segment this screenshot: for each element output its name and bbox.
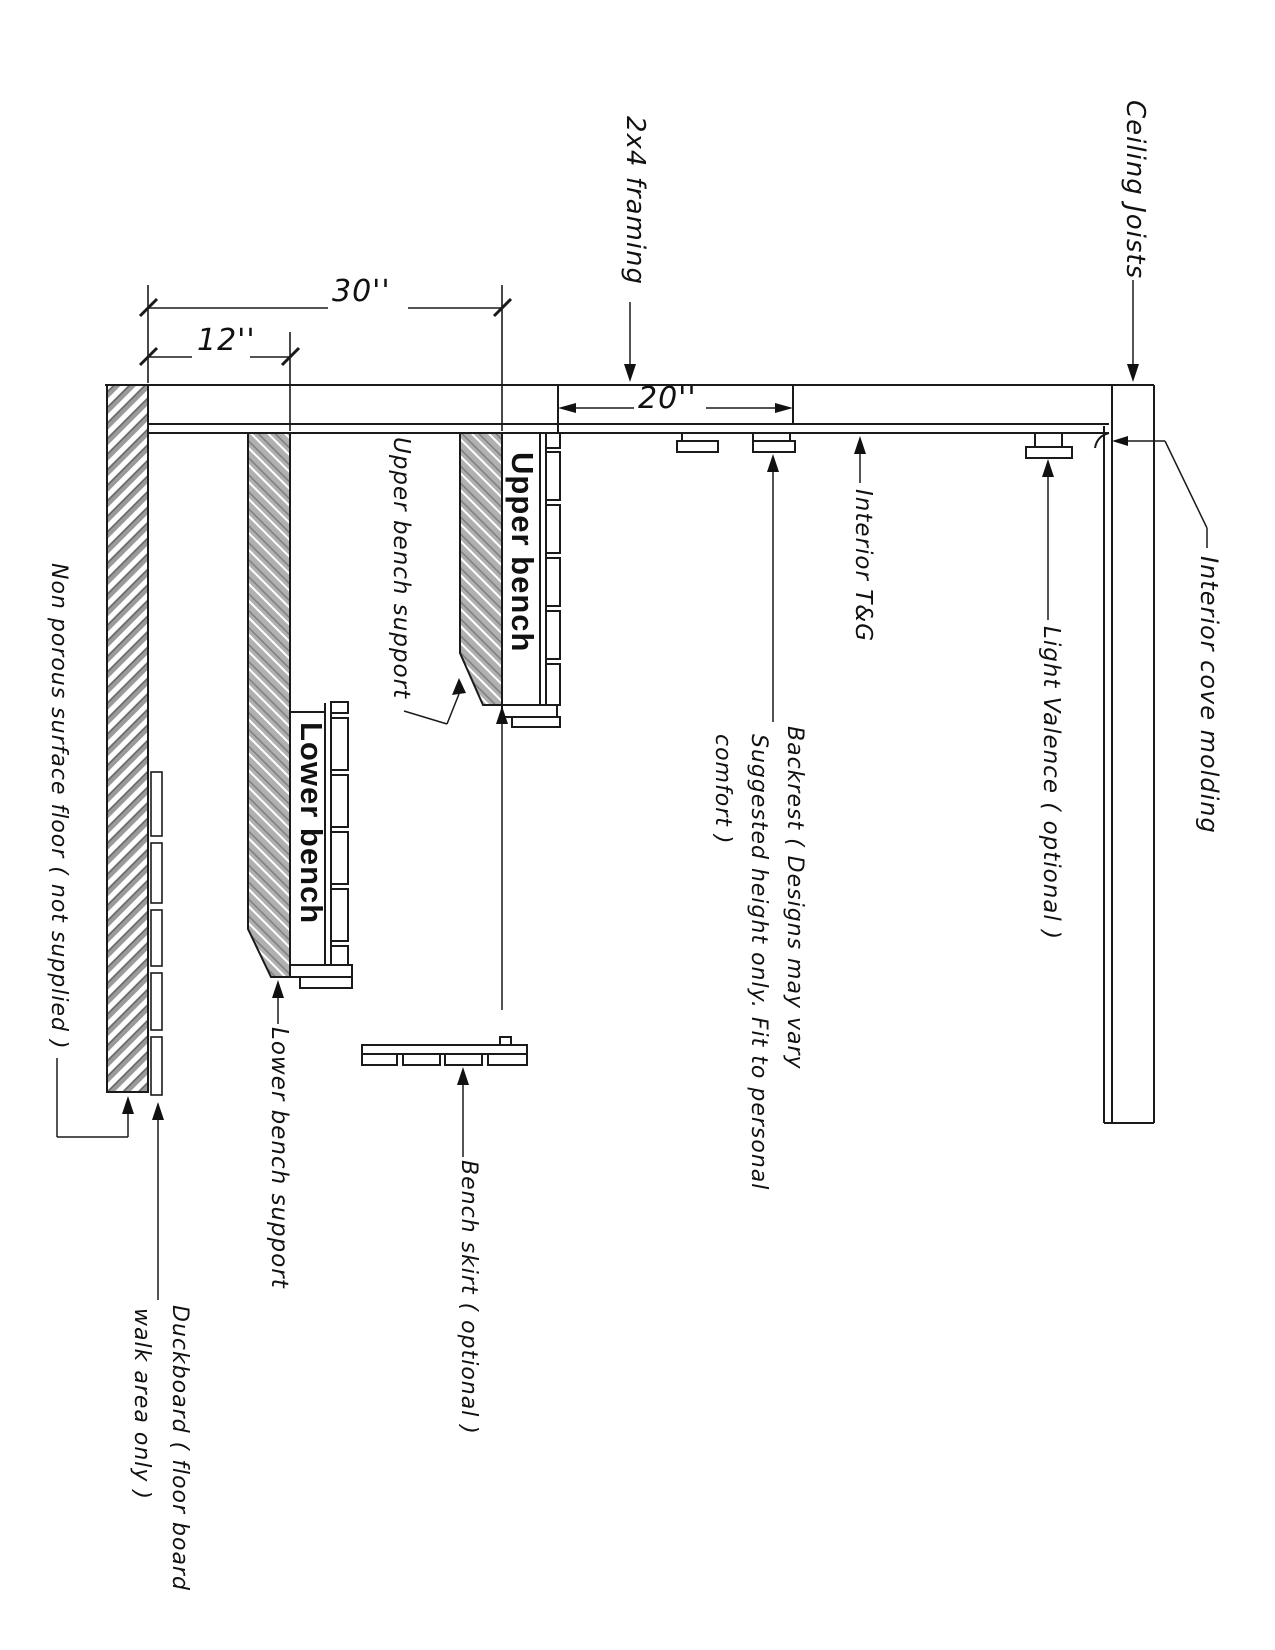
label-interior-tg: Interior T&G (850, 489, 875, 642)
upper-bench-post (460, 433, 502, 705)
label-lower-bench: Lower bench (294, 722, 328, 924)
dimension-30 (140, 285, 511, 431)
label-backrest-line2: Suggested height only. Fit to personal (746, 734, 770, 1190)
label-2x4-framing: 2x4 framing (620, 116, 649, 285)
dim-text-30: 30'' (332, 277, 391, 307)
label-non-porous-floor: Non porous surface floor ( not supplied … (46, 563, 70, 1050)
label-light-valence: Light Valence ( optional ) (1038, 626, 1063, 940)
light-valence-box (1026, 433, 1072, 458)
cove-molding-profile (1095, 433, 1109, 448)
sauna-section-drawing: Ceiling Joists 2x4 framing Interior T&G … (0, 0, 1275, 1650)
duckboard-slats (151, 772, 162, 1095)
bench-skirt-boards (362, 1037, 527, 1065)
dim-text-20: 20'' (638, 384, 697, 414)
lower-bench-post (248, 433, 290, 977)
dim-text-12: 12'' (197, 326, 256, 356)
floor-slab (107, 385, 148, 1092)
label-upper-bench-support: Upper bench support (388, 437, 413, 699)
label-upper-bench: Upper bench (505, 452, 539, 652)
label-backrest-line1: Backrest ( Designs may vary (782, 726, 806, 1070)
wall-band (105, 385, 1154, 433)
label-backrest-line3: comfort ) (710, 734, 734, 844)
label-interior-cove-molding: Interior cove molding (1196, 556, 1222, 834)
label-bench-skirt: Bench skirt ( optional ) (456, 1160, 480, 1435)
label-duckboard-line2: walk area only ) (129, 1308, 153, 1500)
label-duckboard-line1: Duckboard ( floor board (167, 1305, 191, 1591)
label-lower-bench-support: Lower bench support (266, 1027, 291, 1289)
ceiling-joist-bar (1104, 385, 1154, 1123)
label-ceiling-joists: Ceiling Joists (1120, 100, 1149, 279)
